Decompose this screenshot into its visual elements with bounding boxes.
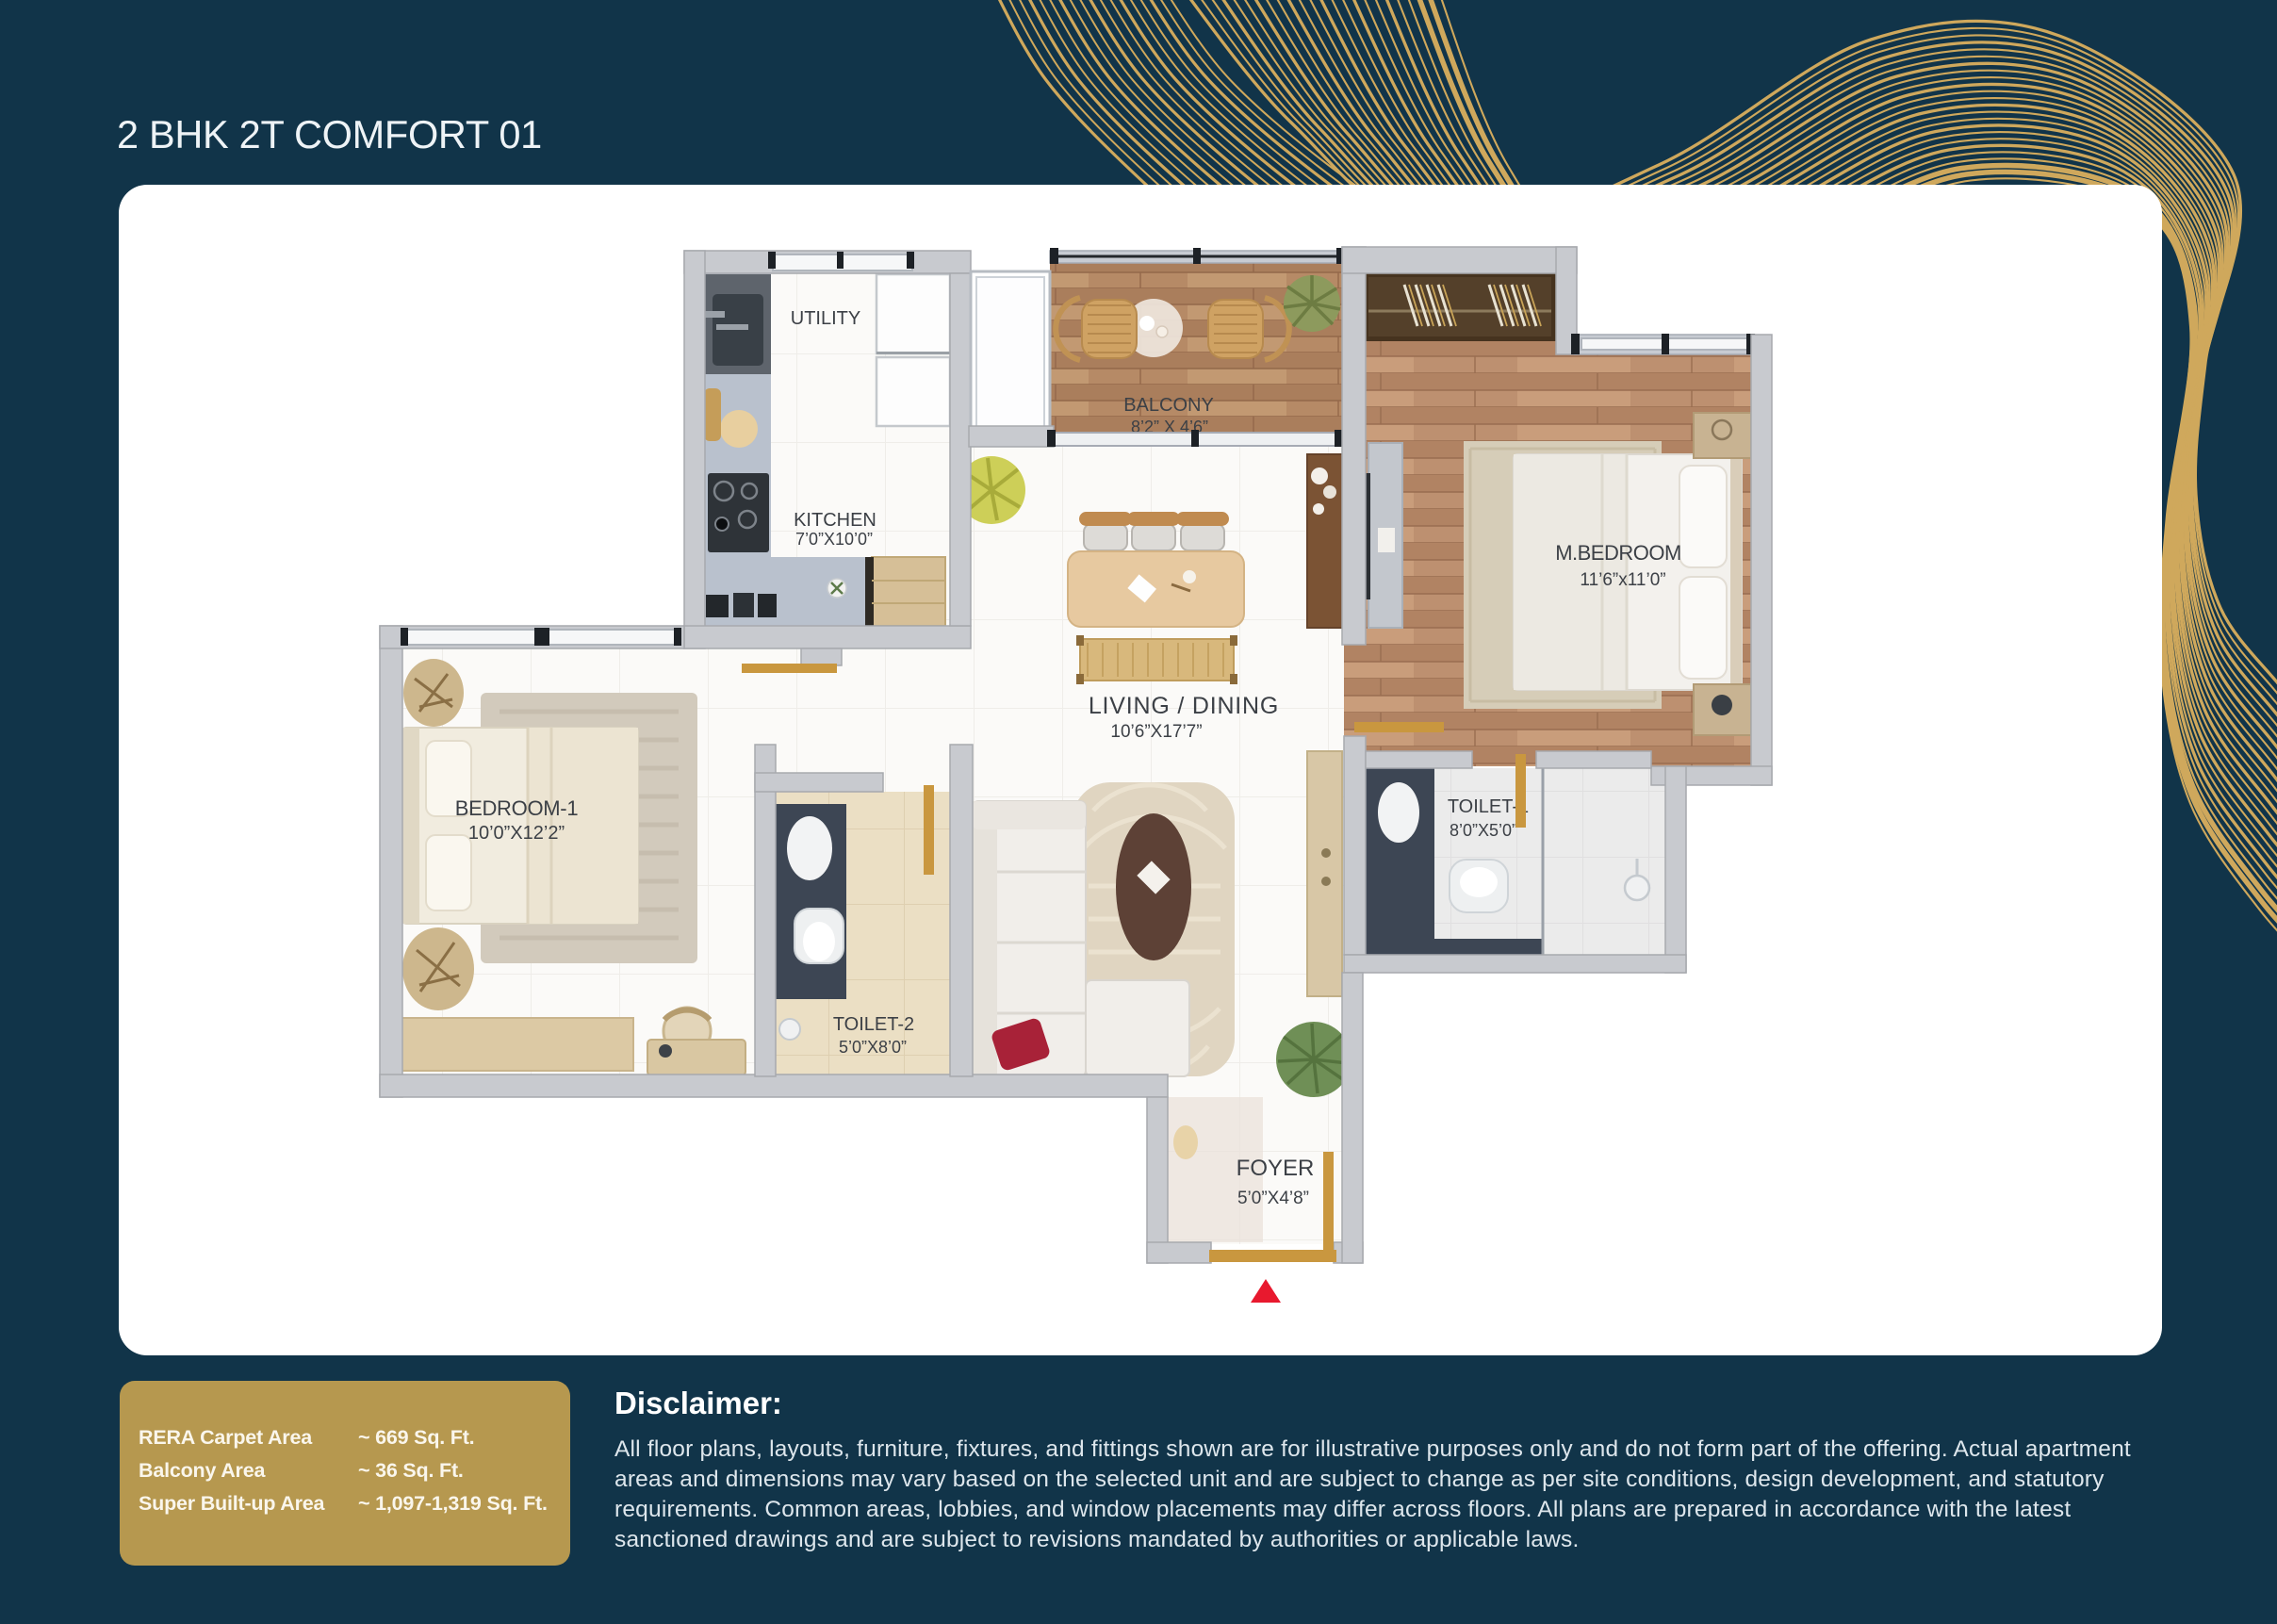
- svg-text:requirements. Common areas, lo: requirements. Common areas, lobbies, and…: [614, 1497, 2071, 1522]
- svg-text:11’6”x11’0”: 11’6”x11’0”: [1580, 570, 1665, 590]
- svg-text:Balcony Area: Balcony Area: [139, 1459, 266, 1482]
- svg-text:~ 669 Sq. Ft.: ~ 669 Sq. Ft.: [358, 1426, 474, 1449]
- svg-text:10’0”X12’2”: 10’0”X12’2”: [468, 823, 565, 844]
- svg-text:~ 1,097-1,319 Sq. Ft.: ~ 1,097-1,319 Sq. Ft.: [358, 1492, 548, 1515]
- svg-text:sanctioned drawings and are su: sanctioned drawings and are subject to r…: [614, 1527, 1579, 1552]
- svg-text:UTILITY: UTILITY: [791, 308, 860, 329]
- svg-text:RERA Carpet Area: RERA Carpet Area: [139, 1426, 313, 1449]
- svg-text:M.BEDROOM: M.BEDROOM: [1555, 541, 1681, 565]
- svg-text:LIVING / DINING: LIVING / DINING: [1089, 693, 1279, 719]
- svg-text:areas and dimensions may vary: areas and dimensions may vary based on t…: [614, 1467, 2105, 1492]
- svg-text:7’0”X10’0”: 7’0”X10’0”: [795, 530, 873, 549]
- svg-text:Disclaimer:: Disclaimer:: [614, 1386, 782, 1420]
- svg-text:KITCHEN: KITCHEN: [794, 510, 876, 531]
- svg-text:5’0”X4’8”: 5’0”X4’8”: [1237, 1189, 1309, 1208]
- svg-text:All floor plans, layouts, furn: All floor plans, layouts, furniture, fix…: [614, 1436, 2131, 1462]
- svg-text:8’0”X5’0”: 8’0”X5’0”: [1450, 821, 1517, 840]
- svg-text:~ 36 Sq. Ft.: ~ 36 Sq. Ft.: [358, 1459, 464, 1482]
- svg-text:2 BHK 2T COMFORT 01: 2 BHK 2T COMFORT 01: [117, 112, 542, 156]
- svg-text:FOYER: FOYER: [1237, 1156, 1315, 1181]
- svg-text:5’0”X8’0”: 5’0”X8’0”: [839, 1038, 907, 1057]
- svg-text:TOILET-2: TOILET-2: [833, 1014, 914, 1035]
- svg-text:Super Built-up Area: Super Built-up Area: [139, 1492, 326, 1515]
- svg-text:BALCONY: BALCONY: [1123, 395, 1214, 416]
- svg-text:BEDROOM-1: BEDROOM-1: [455, 796, 579, 820]
- svg-text:10’6”X17’7”: 10’6”X17’7”: [1110, 722, 1202, 742]
